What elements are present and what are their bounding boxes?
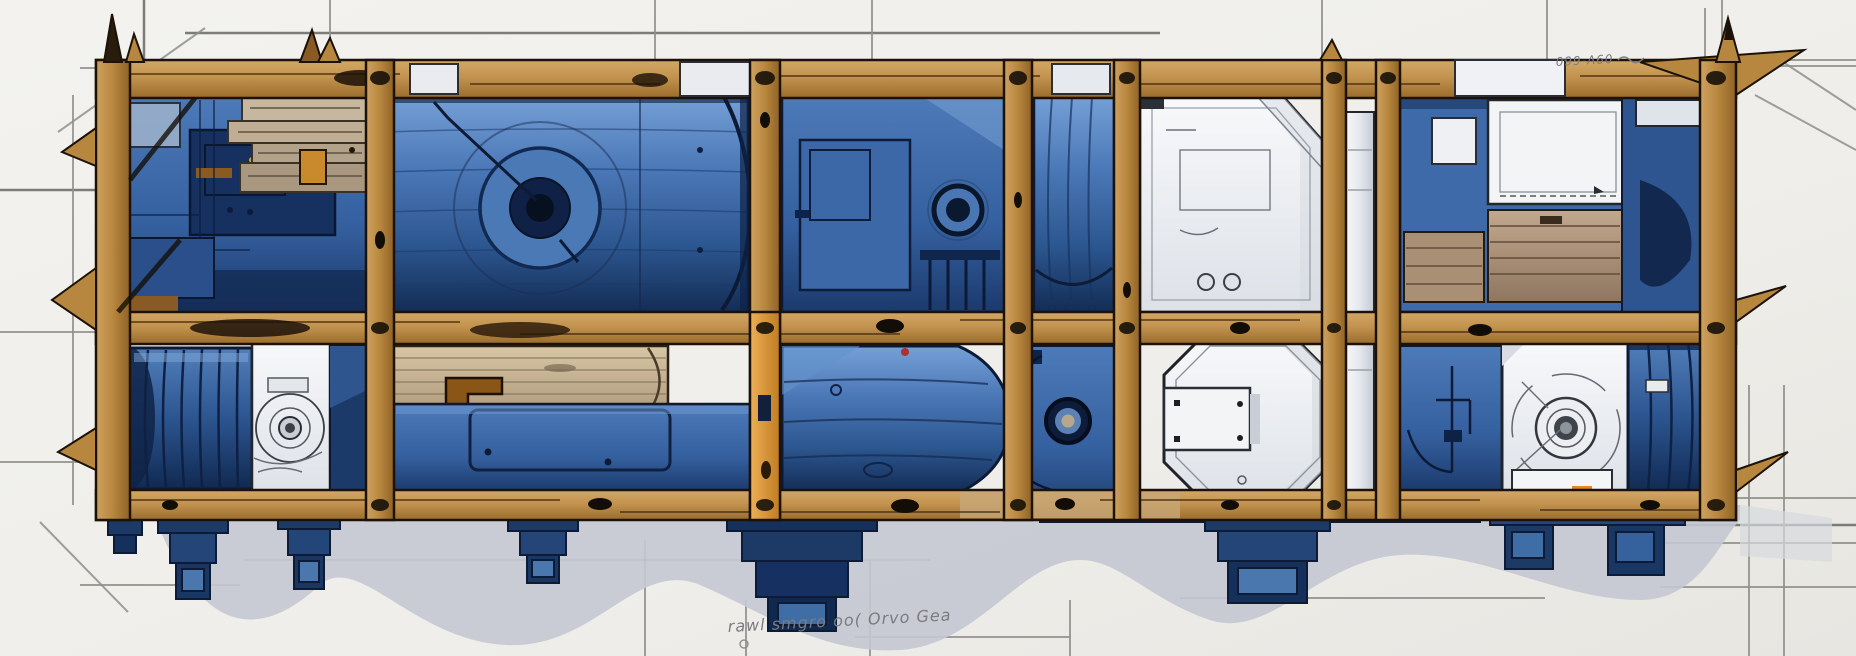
white-pillar — [1346, 112, 1374, 506]
large-white-box — [1488, 100, 1628, 204]
bottom-beam — [96, 490, 1736, 520]
machinery-crate-illustration: 099-A60 rawl smgro oo( Orvo Gea — [0, 0, 1856, 656]
plank-stack — [228, 95, 370, 192]
small-white-box — [1432, 118, 1476, 164]
port-box-machine — [782, 95, 1004, 312]
small-cylinder — [1034, 95, 1114, 312]
plumbing-panel — [1400, 346, 1502, 492]
white-dial-panel — [252, 333, 330, 500]
stack-clamp — [300, 150, 326, 184]
blue-tank-bottom — [392, 404, 762, 492]
middle-beam — [96, 312, 1736, 344]
red-dot — [901, 348, 909, 356]
right-equipment-section — [1400, 95, 1728, 312]
white-dial-unit — [1502, 338, 1628, 498]
octagon-unit — [1164, 335, 1332, 502]
lower-cylinder — [782, 346, 1010, 492]
white-unit-top — [1140, 95, 1322, 312]
large-cylinder — [380, 95, 750, 312]
illustration-canvas: 099-A60 rawl smgro oo( Orvo Gea — [0, 0, 1856, 656]
